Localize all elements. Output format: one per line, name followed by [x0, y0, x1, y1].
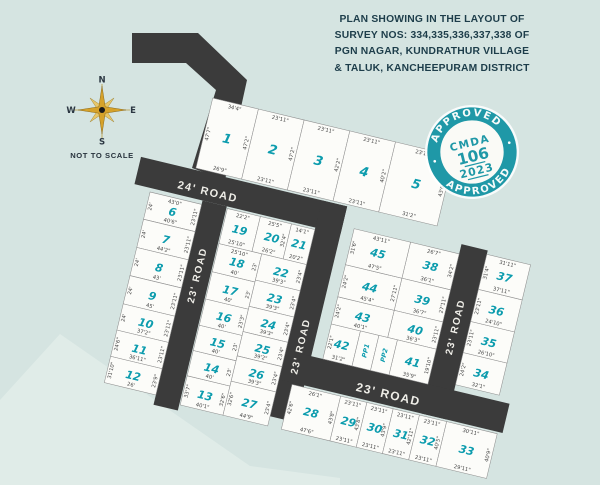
title-line: PLAN SHOWING IN THE LAYOUT OF — [328, 12, 536, 28]
stamp-graphic: APPROVED APPROVED CMDA 106 2023 — [414, 94, 530, 210]
plan-canvas: 134'4"26'9"47'7"47'2"223'11"23'11"47'2"3… — [0, 0, 600, 485]
title-line: & TALUK, KANCHEEPURAM DISTRICT — [328, 61, 536, 77]
plan-title: PLAN SHOWING IN THE LAYOUT OF SURVEY NOS… — [328, 12, 536, 77]
compass-label-east: E — [130, 106, 136, 116]
compass-center-dot — [99, 107, 105, 113]
title-line: SURVEY NOS: 334,335,336,337,338 OF — [328, 28, 536, 44]
compass-label-north: N — [98, 76, 105, 86]
not-to-scale-note: NOT TO SCALE — [54, 151, 150, 160]
compass-label-south: S — [99, 138, 105, 148]
compass-rose: N S E W — [62, 74, 142, 155]
cmda-approval-stamp: APPROVED APPROVED CMDA 106 2023 — [424, 104, 520, 200]
compass-label-west: W — [66, 106, 76, 116]
compass-star-graphic: N S E W — [62, 74, 142, 150]
title-line: PGN NAGAR, KUNDRATHUR VILLAGE — [328, 44, 536, 60]
